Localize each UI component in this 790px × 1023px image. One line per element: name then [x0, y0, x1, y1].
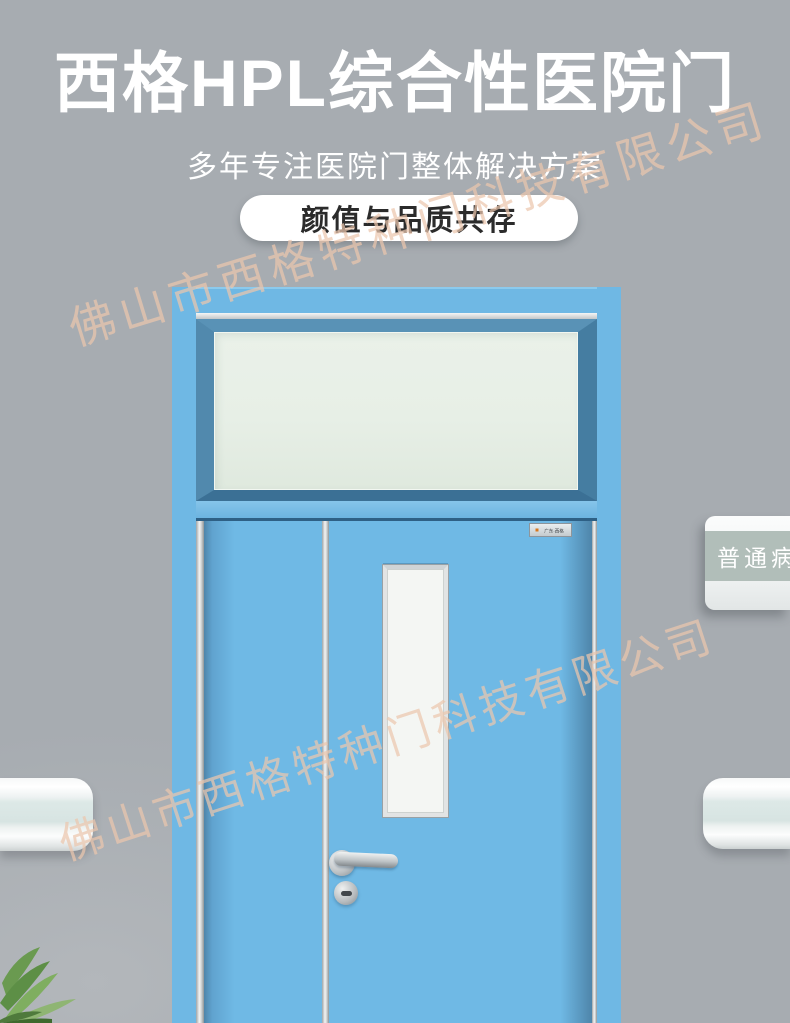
slogan-badge-label: 颜值与品质共存: [300, 197, 517, 239]
hinge-side-strip-left: [196, 521, 204, 1023]
door-leaf-right: [329, 521, 592, 1023]
door-frame-right-jamb: [596, 287, 621, 1023]
brand-plate: 广东·西格: [529, 523, 572, 537]
brand-plate-label: 广东·西格: [544, 527, 564, 534]
keyhole-icon: [341, 891, 352, 896]
wall-handrail-right: [703, 778, 790, 849]
meeting-stile-strip: [322, 521, 329, 1023]
page-subtitle: 多年专注医院门整体解决方案: [0, 142, 790, 186]
transom-window-glass: [214, 332, 578, 490]
ward-sign: 普通病房: [705, 516, 790, 610]
hospital-door-unit: 广东·西格: [172, 287, 621, 1023]
slogan-badge: 颜值与品质共存: [240, 195, 578, 241]
wall-handrail-left: [0, 778, 93, 851]
ward-sign-label: 普通病房: [705, 539, 790, 573]
plant-leaves: [0, 921, 122, 1023]
ad-banner: 西格HPL综合性医院门 多年专注医院门整体解决方案 颜值与品质共存 广东·西格: [0, 0, 790, 1023]
door-frame-head: [196, 287, 597, 313]
door-frame-left-jamb: [172, 287, 197, 1023]
ward-sign-band: 普通病房: [705, 531, 790, 581]
lock-escutcheon: [334, 881, 358, 905]
vision-panel-window: [383, 565, 448, 817]
hinge-side-strip-right: [592, 521, 597, 1023]
door-handle-lever: [334, 852, 399, 869]
transom-window-sash: [196, 319, 597, 501]
page-title: 西格HPL综合性医院门: [0, 46, 790, 122]
transom-bottom-rail: [196, 501, 597, 521]
brand-logo-icon: [535, 529, 538, 532]
door-leaf-left: [204, 521, 322, 1023]
